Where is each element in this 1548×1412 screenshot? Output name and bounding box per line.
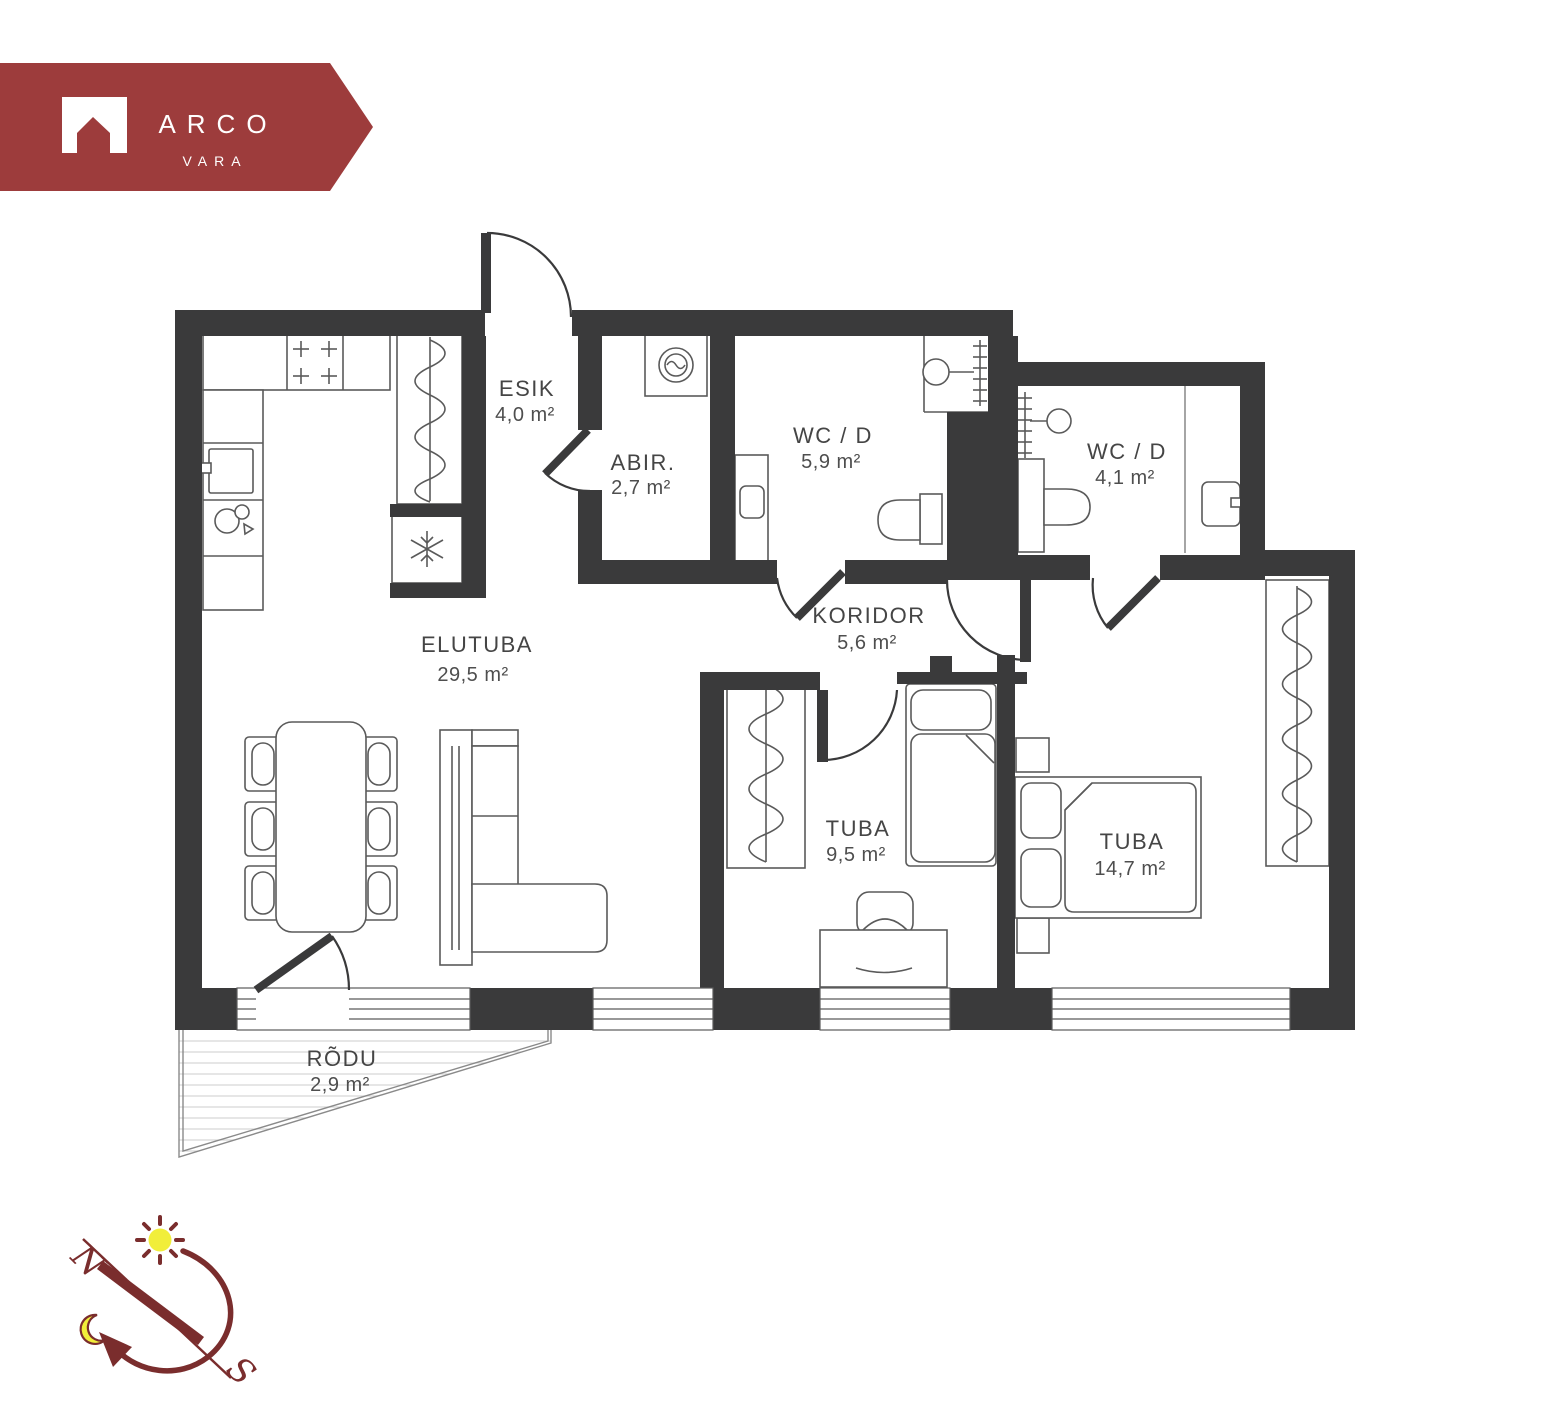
shower-head-icon — [923, 359, 949, 385]
room-label-wcd-2: WC / D — [1087, 439, 1167, 464]
room-label-wcd-1: WC / D — [793, 423, 873, 448]
fridge-icon — [392, 516, 462, 583]
floor-plan-drawing: ARCO VARA — [0, 0, 1548, 1412]
room-area-wcd-1: 5,9 m² — [801, 451, 861, 473]
brand-banner: ARCO VARA — [0, 63, 373, 191]
room-area-koridor: 5,6 m² — [837, 632, 897, 654]
room-area-elutuba: 29,5 m² — [437, 664, 508, 686]
toilet-icon — [878, 500, 920, 540]
compass-south-label: S — [218, 1349, 263, 1394]
oven-icon — [201, 449, 253, 493]
bedroom2-furniture — [1015, 580, 1329, 953]
window — [820, 988, 950, 1030]
brand-subname: VARA — [182, 153, 247, 169]
compass-arc — [117, 1251, 231, 1371]
bedroom1-door — [817, 690, 897, 762]
compass-rose: N S — [62, 1217, 263, 1394]
room-area-esik: 4,0 m² — [495, 404, 555, 426]
room-area-wcd-2: 4,1 m² — [1095, 467, 1155, 489]
room-label-koridor: KORIDOR — [812, 603, 925, 628]
floor-plan-page: ARCO VARA — [0, 0, 1548, 1412]
entrance-door — [481, 233, 571, 317]
room-label-esik: ESIK — [499, 376, 555, 401]
room-area-tuba-2: 14,7 m² — [1094, 858, 1165, 880]
single-bed — [906, 684, 996, 866]
brand-name: ARCO — [158, 109, 277, 139]
room-area-tuba-1: 9,5 m² — [826, 844, 886, 866]
compass-north-label: N — [62, 1236, 113, 1287]
toilet-icon — [1044, 489, 1090, 525]
hand-basin-icon — [740, 486, 764, 518]
compass-needle-bar — [100, 1265, 201, 1341]
desk-and-chair — [820, 892, 947, 987]
entry-wardrobe — [397, 333, 462, 504]
shower-head-icon — [1047, 409, 1071, 433]
bathroom2-door — [1093, 578, 1158, 628]
arco-house-icon — [62, 97, 127, 153]
balcony-door — [256, 936, 349, 990]
sun-icon — [137, 1217, 183, 1263]
room-area-rodu: 2,9 m² — [310, 1074, 370, 1096]
room-label-elutuba: ELUTUBA — [421, 632, 533, 657]
room-label-tuba-1: TUBA — [826, 816, 891, 841]
window — [593, 988, 713, 1030]
nightstand — [1017, 918, 1049, 953]
dining-table — [276, 722, 366, 932]
window — [1052, 988, 1290, 1030]
room-label-tuba-2: TUBA — [1100, 829, 1165, 854]
window — [237, 988, 470, 1030]
abir-door — [545, 430, 590, 491]
dining-set — [245, 722, 397, 932]
furniture-layer — [201, 333, 1329, 987]
washing-machine-icon — [645, 334, 707, 396]
room-label-rodu: RÕDU — [307, 1046, 378, 1071]
nightstand — [1016, 738, 1049, 772]
sofa — [440, 730, 607, 965]
bedroom2-door — [947, 580, 1031, 662]
room-area-abir: 2,7 m² — [611, 477, 671, 499]
moon-icon — [81, 1315, 105, 1344]
room-label-abir: ABIR. — [611, 450, 676, 475]
